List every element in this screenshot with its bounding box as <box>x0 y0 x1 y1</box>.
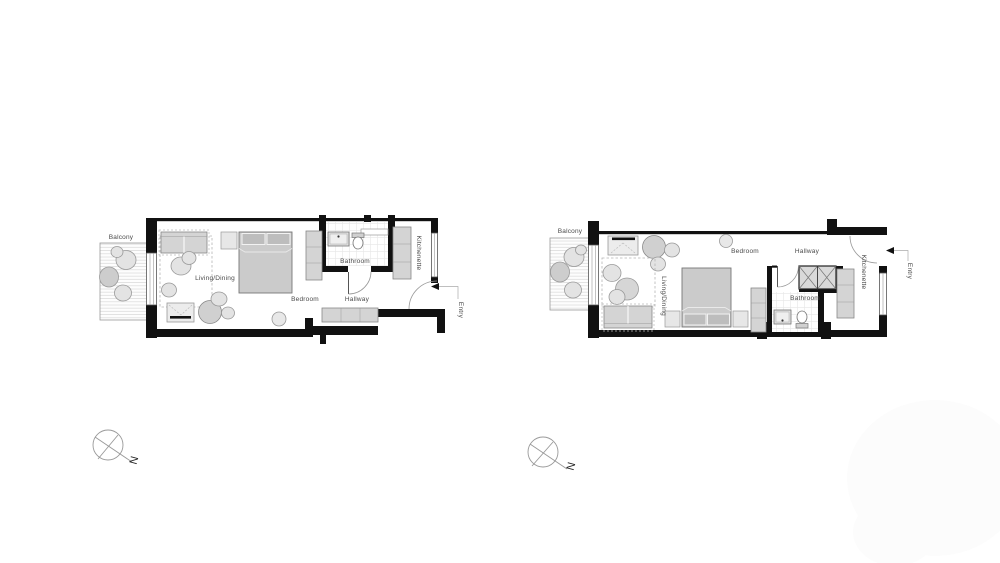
tv <box>170 316 191 319</box>
bedroom-label: Bedroom <box>291 296 319 303</box>
balcony-label: Balcony <box>109 234 134 241</box>
balcony-door-window-right <box>589 245 599 305</box>
living-dining-label: Living/Dining <box>195 275 235 282</box>
wardrobe <box>306 231 322 280</box>
entry-door-arc <box>409 281 437 309</box>
compass-circle <box>93 430 123 460</box>
living-dining-label: Living/Dining <box>660 276 667 316</box>
bathroom-label: Bathroom <box>790 295 820 302</box>
nightstand <box>733 311 748 327</box>
floor-plan-right: Balcony Living/Dining Bedroom Bathroom H… <box>550 219 913 339</box>
tv-console <box>167 303 194 322</box>
bedroom-area-left <box>221 231 322 326</box>
wardrobe <box>751 288 766 332</box>
watermark-blob <box>847 400 1000 563</box>
toilet-cistern <box>796 324 808 329</box>
kitchenette-cabinet <box>837 269 854 318</box>
floor-plans-canvas: Balcony Living/Dining Bedroom Bathroom H… <box>0 0 1000 563</box>
north-indicator: N <box>563 461 577 472</box>
entry-arrow-icon <box>886 247 894 254</box>
toilet <box>797 311 807 323</box>
stool <box>720 235 733 248</box>
hallway-cabinet <box>322 308 378 322</box>
dining-chair <box>665 243 680 257</box>
compass-left: N <box>93 430 140 465</box>
floor-plan-page: { "plans": [ { "name": "left-unit", "lab… <box>0 0 1000 563</box>
hallway-label: Hallway <box>345 296 370 303</box>
floor-plan-left: Balcony Living/Dining Bedroom Bathroom H… <box>100 215 465 344</box>
compass-right: N <box>528 437 577 471</box>
entry-arrow-icon <box>431 283 439 290</box>
dining-chair <box>211 292 227 306</box>
stool <box>272 312 286 326</box>
balcony-door-window-left <box>147 253 157 305</box>
pillow <box>242 234 265 245</box>
compass-circle <box>528 437 558 467</box>
entry-marker-left <box>431 283 458 299</box>
nightstand <box>221 232 237 249</box>
tv <box>612 238 635 241</box>
kitchenette-label: Kitchenette <box>415 236 422 271</box>
kitchenette-label: Kitchenette <box>860 255 867 290</box>
shower-unit <box>799 266 836 289</box>
bedroom-label: Bedroom <box>731 248 759 255</box>
pillow <box>708 314 730 325</box>
bathroom-door-arc <box>778 266 799 287</box>
hallway-label: Hallway <box>795 248 820 255</box>
pillow <box>684 314 706 325</box>
entry-label: Entry <box>457 302 464 319</box>
hallway-kitchen-right <box>837 236 877 318</box>
balcony-label: Balcony <box>558 228 583 235</box>
kitchenette-cabinet <box>393 227 411 279</box>
pillow <box>267 234 290 245</box>
north-indicator: N <box>126 455 140 466</box>
bathroom-door-arc <box>349 272 372 295</box>
entry-label: Entry <box>906 263 913 280</box>
kitchen-window-right <box>880 273 887 315</box>
dining-table <box>643 236 666 259</box>
balcony-left <box>100 243 148 320</box>
kitchen-window-left <box>432 233 438 277</box>
entry-marker-right <box>886 247 908 261</box>
shelf <box>361 229 388 235</box>
dining-chair <box>222 307 235 319</box>
dining-chair <box>651 257 666 271</box>
bathroom-label: Bathroom <box>340 258 370 265</box>
armchair <box>603 265 621 282</box>
toilet <box>353 237 363 249</box>
